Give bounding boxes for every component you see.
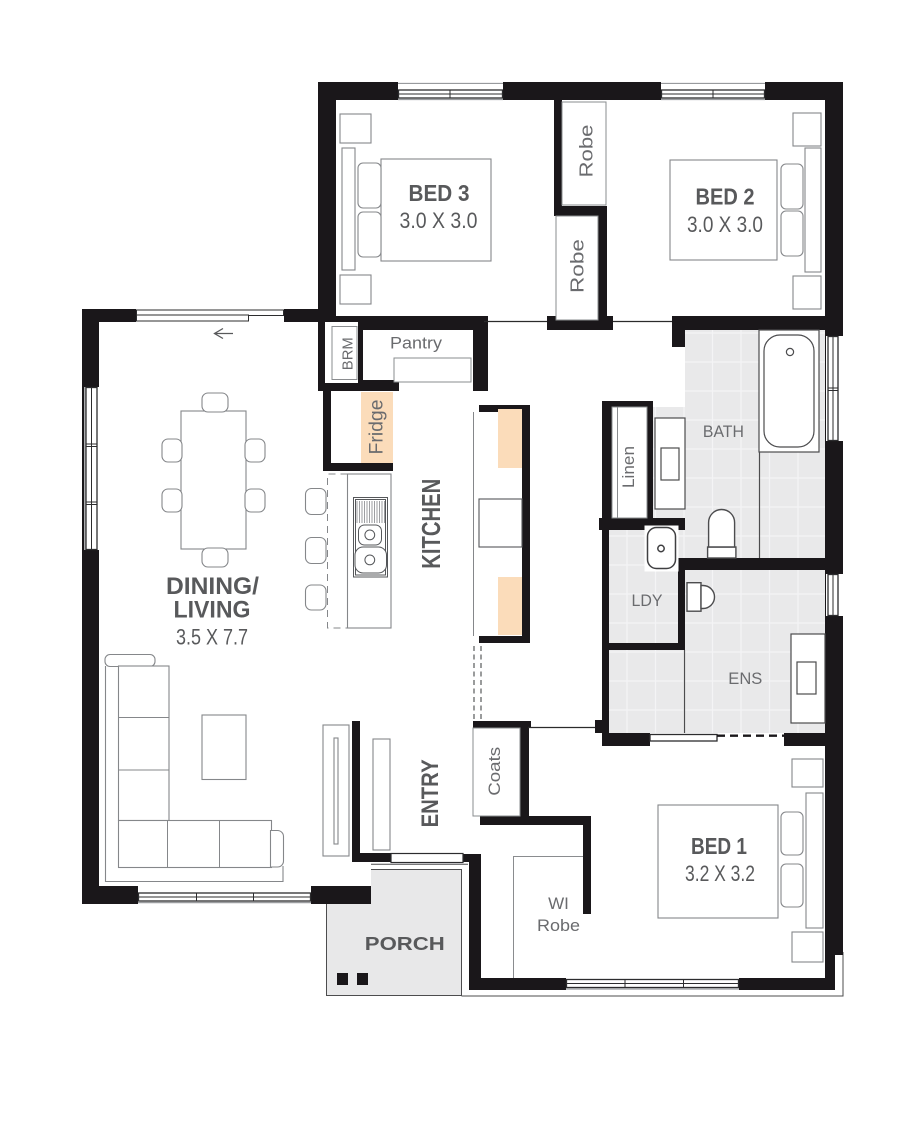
svg-text:Robe: Robe (537, 916, 580, 935)
svg-text:Pantry: Pantry (390, 334, 443, 353)
svg-text:Robe: Robe (577, 125, 597, 178)
svg-text:PORCH: PORCH (365, 934, 445, 954)
svg-text:WI: WI (548, 894, 569, 913)
svg-text:Fridge: Fridge (367, 400, 388, 455)
svg-text:3.0 X 3.0: 3.0 X 3.0 (400, 208, 478, 233)
svg-text:ENTRY: ENTRY (417, 759, 444, 827)
svg-text:KITCHEN: KITCHEN (416, 479, 446, 569)
svg-text:BRM: BRM (341, 337, 357, 370)
svg-text:Coats: Coats (485, 747, 504, 796)
svg-text:ENS: ENS (728, 669, 762, 688)
svg-text:BED 2: BED 2 (696, 184, 755, 210)
svg-text:BATH: BATH (703, 423, 744, 441)
svg-text:LDY: LDY (632, 591, 663, 610)
svg-text:Robe: Robe (568, 239, 588, 293)
svg-text:3.0 X 3.0: 3.0 X 3.0 (687, 212, 763, 237)
svg-text:BED 1: BED 1 (691, 833, 747, 859)
svg-text:LIVING: LIVING (174, 597, 251, 624)
svg-text:BED 3: BED 3 (409, 180, 470, 206)
svg-text:3.2 X 3.2: 3.2 X 3.2 (685, 861, 755, 886)
svg-text:Linen: Linen (619, 446, 638, 488)
svg-text:3.5 X 7.7: 3.5 X 7.7 (176, 625, 248, 650)
